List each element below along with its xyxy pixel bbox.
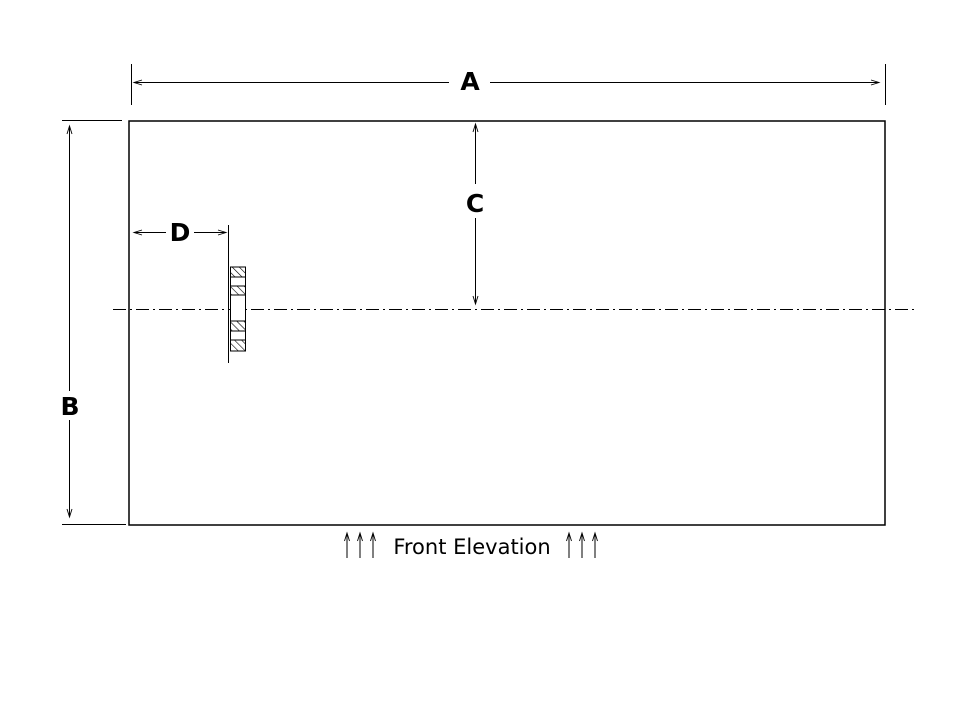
stud-hatch-box-1: [231, 267, 246, 277]
stud-hatch-box-4: [231, 340, 246, 351]
dimension-d: D: [134, 218, 226, 247]
stud-hatch-box-3: [231, 321, 246, 331]
stud-plain-box-1: [231, 277, 246, 286]
stud-section: [229, 225, 246, 363]
up-arrows-left: [347, 533, 373, 558]
view-title-annotation: Front Elevation: [347, 533, 595, 559]
dimension-b-label: B: [60, 392, 79, 421]
front-elevation-drawing: A B C D: [0, 0, 960, 720]
stud-hatch-box-2: [231, 286, 246, 295]
stud-plain-box-3: [231, 331, 246, 340]
dimension-d-label: D: [170, 218, 191, 247]
dimension-c: C: [466, 124, 484, 304]
up-arrows-right: [569, 533, 595, 558]
stud-plain-box-2: [231, 295, 246, 321]
dimension-a: A: [132, 64, 886, 105]
drawing-svg: A B C D: [0, 0, 960, 720]
dimension-b: B: [60, 121, 126, 525]
dimension-c-label: C: [466, 189, 484, 218]
dimension-a-label: A: [460, 67, 480, 96]
view-title-label: Front Elevation: [393, 535, 550, 559]
